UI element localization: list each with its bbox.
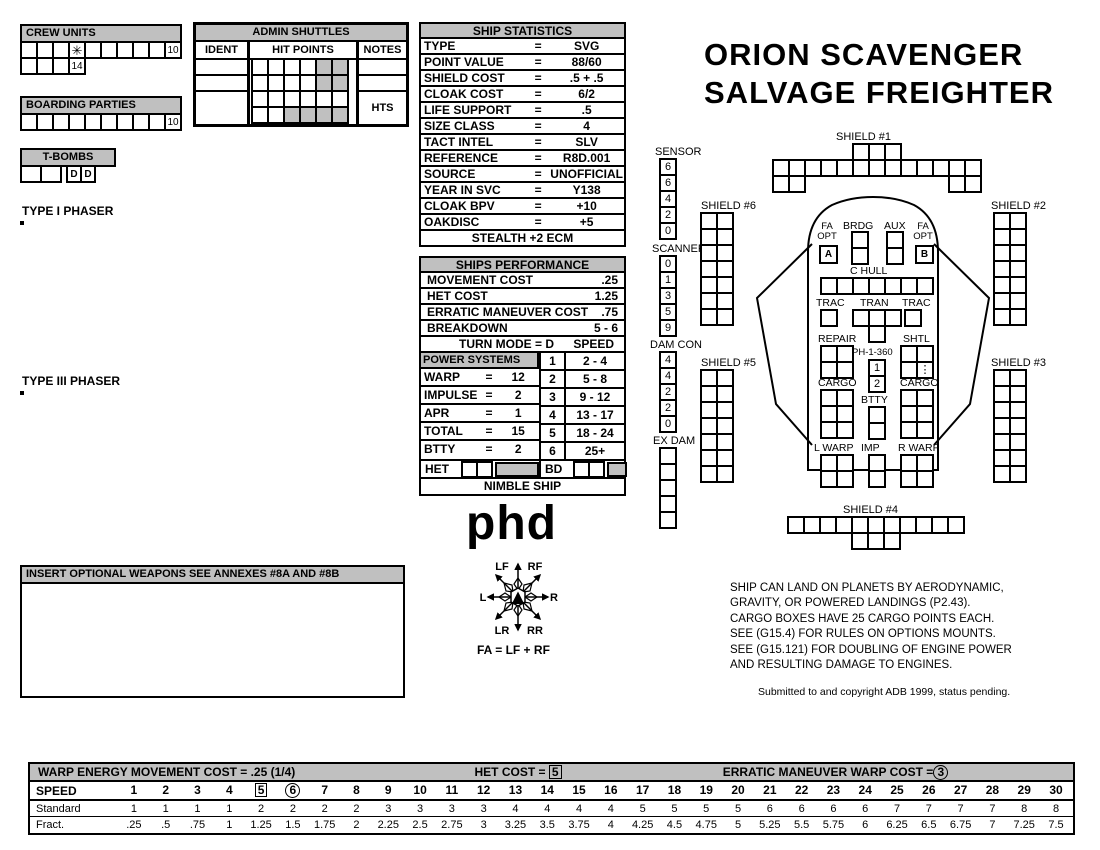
box-cell: D — [82, 167, 96, 183]
box-cell — [870, 456, 886, 472]
box-cell — [918, 407, 934, 423]
shield6-grid — [700, 212, 734, 326]
breakdown-label: BREAKDOWN — [427, 321, 508, 335]
table-cell: .5 — [549, 102, 625, 118]
box-cell: 3 — [372, 803, 404, 815]
box-cell — [718, 387, 734, 403]
erratic-maneuver-label: ERRATIC MANEUVER COST — [427, 305, 588, 319]
ships-performance-title: SHIPS PERFORMANCE — [419, 256, 626, 273]
box-cell — [995, 230, 1011, 246]
box-cell — [838, 279, 854, 295]
box-cell: ✳ — [70, 43, 86, 59]
table-cell: SIZE CLASS — [420, 118, 527, 134]
box-cell — [702, 467, 718, 483]
box-cell: 2 — [277, 803, 309, 815]
power-systems-header: POWER SYSTEMS — [421, 353, 539, 369]
table-cell: SVG — [549, 38, 625, 54]
het-cost-label: HET COST — [427, 289, 488, 303]
box-cell: 18 — [659, 783, 691, 798]
box-cell — [590, 463, 605, 478]
box-cell — [918, 456, 934, 472]
box-cell: 1 — [213, 819, 245, 831]
box-cell: 5 — [627, 803, 659, 815]
box-cell — [1011, 230, 1027, 246]
standard-row: Standard 111122223333444455556666777788 — [30, 801, 1073, 817]
type1-phaser-table — [20, 221, 24, 225]
table-cell: 2 - 4 — [565, 353, 624, 370]
box-cell — [718, 451, 734, 467]
box-cell: 1.5 — [277, 819, 309, 831]
table-row: BTTY=2 — [421, 440, 539, 457]
transporter-label: TRAN — [860, 297, 889, 309]
box-cell: 1 — [118, 803, 150, 815]
box-cell — [995, 451, 1011, 467]
left-warp-boxes — [820, 454, 854, 488]
repair-boxes — [820, 345, 854, 379]
box-cell — [1011, 310, 1027, 326]
box-cell: 10 — [166, 43, 182, 59]
box-cell — [269, 108, 285, 124]
box-cell: 24 — [849, 783, 881, 798]
box-cell — [150, 115, 166, 131]
table-row: LIFE SUPPORT=.5 — [420, 102, 625, 118]
box-cell — [918, 161, 934, 177]
admin-notes-column: HTS — [356, 60, 406, 124]
movement-cost-label: MOVEMENT COST — [427, 273, 533, 287]
table-cell: = — [527, 102, 549, 118]
box-cell — [718, 214, 734, 230]
shield5-grid — [700, 369, 734, 483]
ships-performance-panel: SHIPS PERFORMANCE MOVEMENT COST .25 HET … — [419, 256, 626, 496]
box-cell — [886, 161, 902, 177]
speed-column-label: SPEED — [573, 337, 614, 351]
box-cell: 5 — [661, 305, 677, 321]
scanner-track: 01359 — [659, 255, 677, 337]
arc-label-r: R — [550, 592, 558, 604]
arc-label-rf: RF — [528, 561, 543, 573]
box-cell: 6 — [818, 803, 850, 815]
table-row: IMPULSE=2 — [421, 386, 539, 404]
bridge-boxes — [851, 231, 869, 265]
box-cell — [838, 161, 854, 177]
shield1-label: SHIELD #1 — [836, 131, 891, 143]
optional-weapons-panel: INSERT OPTIONAL WEAPONS SEE ANNEXES #8A … — [20, 565, 405, 698]
phaser-mount-label: PH-1-360 — [852, 347, 893, 358]
admin-notes-hts: HTS — [359, 92, 406, 124]
box-cell — [870, 408, 886, 424]
boarding-parties-panel: BOARDING PARTIES 10 — [20, 96, 182, 131]
table-cell: TYPE — [420, 38, 527, 54]
crew-units-row1: ✳10 — [20, 41, 182, 59]
box-cell — [888, 249, 904, 265]
shield2-label: SHIELD #2 — [991, 200, 1046, 212]
box-cell — [22, 167, 42, 183]
table-cell: 4 — [549, 118, 625, 134]
box-cell — [869, 534, 885, 550]
box-cell — [702, 278, 718, 294]
box-cell — [661, 465, 677, 481]
box-cell: B — [917, 247, 934, 264]
box-cell — [1011, 371, 1027, 387]
box-cell: 23 — [818, 783, 850, 798]
box-cell: 3.25 — [500, 819, 532, 831]
box-cell: 1 — [661, 273, 677, 289]
t-bombs-cells — [20, 165, 62, 183]
box-cell: A — [821, 247, 838, 264]
box-cell — [317, 108, 333, 124]
table-cell: = — [527, 214, 549, 230]
box-cell — [902, 423, 918, 439]
box-cell — [822, 456, 838, 472]
box-cell — [995, 294, 1011, 310]
repair-label: REPAIR — [818, 333, 856, 345]
table-cell: 25+ — [565, 442, 624, 459]
bd-gray-box — [607, 462, 627, 477]
het-bd-row: HET BD — [421, 461, 624, 479]
box-cell — [718, 294, 734, 310]
table-cell: UNOFFICIAL — [549, 166, 625, 182]
box-cell — [702, 294, 718, 310]
fa-opt-b-box: B — [915, 245, 934, 264]
cargo-left-label: CARGO — [818, 377, 857, 389]
shuttle-boxes: ⋮ — [900, 345, 934, 379]
box-cell — [995, 278, 1011, 294]
box-cell — [1011, 419, 1027, 435]
box-cell — [918, 279, 934, 295]
box-cell: D — [68, 167, 82, 183]
warp-cost-header: WARP ENERGY MOVEMENT COST = .25 (1/4) — [30, 765, 438, 779]
box-cell: 5.25 — [754, 819, 786, 831]
box-cell — [333, 92, 349, 108]
rules-notes: SHIP CAN LAND ON PLANETS BY AERODYNAMIC,… — [730, 581, 1012, 673]
box-cell — [853, 534, 869, 550]
box-cell: 2 — [661, 401, 677, 417]
fa-opt-b-label: FAOPT — [908, 222, 938, 242]
box-cell — [269, 92, 285, 108]
table-row: CLOAK COST=6/2 — [420, 86, 625, 102]
box-cell — [269, 76, 285, 92]
table-cell: 13 - 17 — [565, 406, 624, 424]
box-cell — [42, 167, 62, 183]
nimble-ship-note: NIMBLE SHIP — [421, 479, 624, 494]
box-cell: 7 — [977, 819, 1009, 831]
shield1-bottom-right — [948, 175, 982, 193]
right-wing — [934, 244, 989, 445]
cargo-right-label: CARGO — [900, 377, 939, 389]
box-cell: 29 — [1008, 783, 1040, 798]
box-cell — [1011, 435, 1027, 451]
movement-cost-row: MOVEMENT COST .25 — [421, 273, 624, 289]
box-cell — [22, 43, 38, 59]
box-cell: 6 — [661, 176, 677, 192]
box-cell — [902, 456, 918, 472]
box-cell — [118, 43, 134, 59]
admin-notes-row1 — [359, 60, 406, 76]
table-row: SIZE CLASS=4 — [420, 118, 625, 134]
shield2-grid — [993, 212, 1027, 326]
box-cell — [702, 371, 718, 387]
box-cell — [22, 115, 38, 131]
table-row: YEAR IN SVC=Y138 — [420, 182, 625, 198]
table-cell: 6 — [541, 442, 565, 459]
table-cell: 6/2 — [549, 86, 625, 102]
box-cell: 2 — [341, 819, 373, 831]
table-cell: = — [481, 369, 498, 386]
box-cell: 26 — [913, 783, 945, 798]
table-cell: 3 — [541, 388, 565, 406]
box-cell — [70, 115, 86, 131]
box-cell: 7 — [913, 803, 945, 815]
box-cell: 2 — [661, 385, 677, 401]
table-cell: = — [481, 386, 498, 404]
table-cell: 9 - 12 — [565, 388, 624, 406]
box-cell — [661, 449, 677, 465]
erratic-maneuver-value: .75 — [601, 305, 618, 319]
box-cell: 4 — [500, 803, 532, 815]
box-cell: 4 — [213, 783, 245, 798]
box-cell — [38, 43, 54, 59]
box-cell: 2 — [870, 377, 886, 393]
cargo-left-boxes — [820, 389, 854, 439]
box-cell: 3 — [468, 803, 500, 815]
box-cell — [38, 59, 54, 75]
shuttle-label: SHTL — [903, 333, 930, 345]
box-cell: 2.25 — [372, 819, 404, 831]
box-cell — [269, 60, 285, 76]
table-row: POINT VALUE=88/60 — [420, 54, 625, 70]
het-gray-box — [495, 462, 539, 477]
box-cell — [838, 456, 854, 472]
box-cell: 4.75 — [690, 819, 722, 831]
box-cell: 7 — [881, 803, 913, 815]
box-cell: 1 — [118, 783, 150, 798]
box-cell — [333, 60, 349, 76]
box-cell — [870, 327, 886, 343]
box-cell: 12 — [468, 783, 500, 798]
box-cell — [995, 419, 1011, 435]
sensor-track-label: SENSOR — [655, 146, 701, 158]
box-cell: 2 — [341, 803, 373, 815]
turn-mode-label: TURN MODE = D — [459, 337, 554, 351]
admin-ident-row3 — [196, 92, 247, 124]
het-cost-row: HET COST 1.25 — [421, 289, 624, 305]
box-cell — [822, 391, 838, 407]
table-cell: = — [527, 166, 549, 182]
box-cell — [966, 177, 982, 193]
box-cell: 2 — [309, 803, 341, 815]
box-cell — [1011, 387, 1027, 403]
bd-label: BD — [541, 461, 569, 477]
box-cell — [102, 43, 118, 59]
phd-marking: phd — [466, 500, 557, 548]
note-line: CARGO BOXES HAVE 25 CARGO POINTS EACH. — [730, 612, 1012, 627]
box-cell — [285, 108, 301, 124]
table-row: 518 - 24 — [541, 424, 624, 442]
box-cell — [702, 435, 718, 451]
box-cell — [1011, 262, 1027, 278]
bd-boxes — [573, 461, 605, 478]
box-cell — [702, 262, 718, 278]
table-row: 39 - 12 — [541, 388, 624, 406]
box-cell: 7.25 — [1008, 819, 1040, 831]
box-cell: 6 — [277, 783, 309, 798]
table-row: 25 - 8 — [541, 370, 624, 388]
box-cell: 3.5 — [531, 819, 563, 831]
box-cell: 6.5 — [913, 819, 945, 831]
battery-label: BTTY — [861, 394, 888, 406]
box-cell — [995, 262, 1011, 278]
box-cell: 3.75 — [563, 819, 595, 831]
box-cell — [888, 233, 904, 249]
box-cell — [718, 371, 734, 387]
box-cell — [902, 347, 918, 363]
box-cell: 7.5 — [1040, 819, 1072, 831]
table-cell: = — [481, 440, 498, 457]
admin-ident-column — [196, 60, 250, 124]
box-cell — [301, 76, 317, 92]
table-cell: CLOAK BPV — [420, 198, 527, 214]
box-cell: 9 — [661, 321, 677, 337]
c-hull-boxes — [820, 277, 934, 295]
erratic-cost-circled-value: 3 — [933, 765, 948, 780]
box-cell: 7 — [945, 803, 977, 815]
shield3-grid — [993, 369, 1027, 483]
box-cell: 2 — [661, 208, 677, 224]
box-cell — [253, 60, 269, 76]
box-cell: 0 — [661, 257, 677, 273]
box-cell — [702, 310, 718, 326]
box-cell — [301, 60, 317, 76]
table-cell: 1 — [497, 404, 539, 422]
box-cell — [702, 246, 718, 262]
speed-row-label: SPEED — [30, 784, 118, 798]
speed-row: SPEED 1234567891011121314151617181920212… — [30, 782, 1073, 801]
tractor-right-box — [904, 309, 922, 327]
box-cell — [718, 403, 734, 419]
copyright-note: Submitted to and copyright ADB 1999, sta… — [758, 686, 1010, 698]
box-cell: 11 — [436, 783, 468, 798]
shield1-bottom-left — [772, 175, 806, 193]
box-cell — [918, 423, 934, 439]
right-warp-label: R WARP — [898, 442, 940, 454]
standard-values: 111122223333444455556666777788 — [118, 803, 1073, 815]
box-cell: 4 — [661, 192, 677, 208]
stealth-note: STEALTH +2 ECM — [419, 231, 626, 247]
box-cell: 5 — [245, 783, 277, 798]
box-cell — [718, 262, 734, 278]
box-cell: 10 — [404, 783, 436, 798]
box-cell: 2.5 — [404, 819, 436, 831]
shield4-label: SHIELD #4 — [843, 504, 898, 516]
box-cell — [902, 472, 918, 488]
note-line: AND RESULTING DAMAGE TO ENGINES. — [730, 658, 1012, 673]
box-cell — [702, 230, 718, 246]
movement-cost-value: .25 — [601, 273, 618, 287]
box-cell — [253, 92, 269, 108]
table-cell: +5 — [549, 214, 625, 230]
box-cell — [661, 513, 677, 529]
note-line: SEE (G15.121) FOR DOUBLING OF ENGINE POW… — [730, 643, 1012, 658]
box-cell — [478, 463, 493, 478]
box-cell — [789, 518, 805, 534]
table-cell: IMPULSE — [421, 386, 481, 404]
optional-weapons-header: INSERT OPTIONAL WEAPONS SEE ANNEXES #8A … — [22, 567, 403, 584]
table-cell: SLV — [549, 134, 625, 150]
box-cell — [301, 108, 317, 124]
box-cell — [702, 403, 718, 419]
box-cell: 2 — [245, 803, 277, 815]
table-cell: WARP — [421, 369, 481, 386]
box-cell — [902, 279, 918, 295]
box-cell — [838, 472, 854, 488]
crew-units-panel: CREW UNITS ✳10 14 — [20, 24, 182, 75]
table-cell: = — [481, 422, 498, 440]
tractor-left-label: TRAC — [816, 297, 845, 309]
box-cell: 4 — [531, 803, 563, 815]
box-cell: 17 — [627, 783, 659, 798]
box-cell — [854, 279, 870, 295]
box-cell — [38, 115, 54, 131]
admin-notes-row2 — [359, 76, 406, 92]
box-cell — [1011, 451, 1027, 467]
breakdown-value: 5 - 6 — [594, 321, 618, 335]
box-cell — [22, 59, 38, 75]
impulse-label: IMP — [861, 442, 880, 454]
box-cell — [86, 115, 102, 131]
table-cell: 2 — [497, 440, 539, 457]
box-cell — [995, 387, 1011, 403]
fract-row-label: Fract. — [30, 819, 118, 831]
box-cell: .75 — [182, 819, 214, 831]
box-cell: 6 — [661, 160, 677, 176]
box-cell — [822, 407, 838, 423]
box-cell — [822, 311, 838, 327]
arc-label-lr: LR — [495, 625, 510, 637]
box-cell — [54, 115, 70, 131]
tractor-right-label: TRAC — [902, 297, 931, 309]
box-cell — [995, 310, 1011, 326]
table-cell: CLOAK COST — [420, 86, 527, 102]
warp-speed-chart: WARP ENERGY MOVEMENT COST = .25 (1/4) HE… — [28, 762, 1075, 835]
box-cell — [838, 423, 854, 439]
box-cell: 1 — [150, 803, 182, 815]
box-cell: 13 — [500, 783, 532, 798]
table-cell: 2 — [497, 386, 539, 404]
aux-boxes — [886, 231, 904, 265]
table-cell: 15 — [497, 422, 539, 440]
box-cell — [902, 391, 918, 407]
box-cell — [285, 60, 301, 76]
box-cell — [1011, 294, 1027, 310]
box-cell — [790, 177, 806, 193]
box-cell — [917, 518, 933, 534]
box-cell — [886, 311, 902, 327]
box-cell: 3 — [468, 819, 500, 831]
box-cell — [918, 347, 934, 363]
box-cell — [253, 76, 269, 92]
box-cell: 1.25 — [245, 819, 277, 831]
box-cell — [1011, 403, 1027, 419]
table-row: 413 - 17 — [541, 406, 624, 424]
note-line: GRAVITY, OR POWERED LANDINGS (P2.43). — [730, 596, 1012, 611]
right-warp-boxes — [900, 454, 934, 488]
box-cell: 1 — [213, 803, 245, 815]
arc-label-l: L — [480, 592, 487, 604]
box-cell — [118, 115, 134, 131]
box-cell: 14 — [531, 783, 563, 798]
box-cell — [995, 435, 1011, 451]
t-bombs-panel: T-BOMBS DD — [20, 148, 116, 183]
